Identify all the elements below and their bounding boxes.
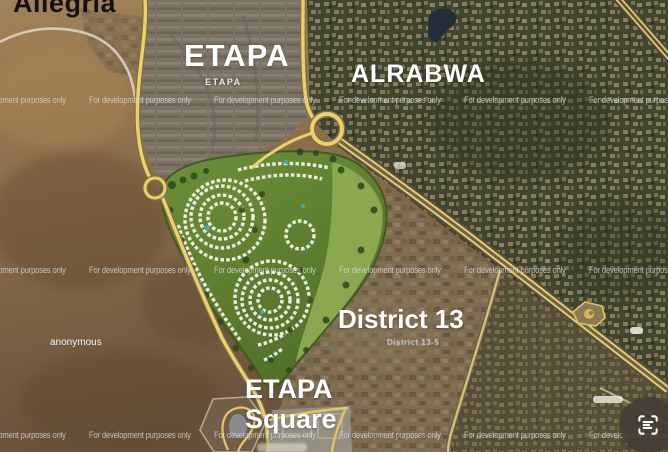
label-etapa-square-line1: ETAPA (245, 374, 337, 404)
map-canvas[interactable]: For development purposes onlyFor develop… (0, 0, 668, 452)
text-scan-icon (635, 412, 661, 438)
label-anonymous: anonymous (50, 337, 102, 348)
blurred-street-label (257, 443, 307, 452)
label-district-13-sub: District 13-5 (387, 338, 439, 347)
label-etapa: ETAPA (184, 38, 289, 74)
label-etapa-square-line2: Square (245, 404, 337, 434)
label-etapa-small: ETAPA (205, 77, 242, 87)
text-scan-button[interactable] (620, 397, 668, 452)
label-allegria: Allegria (13, 0, 116, 19)
label-district-13: District 13 (338, 304, 464, 335)
label-alrabwa: ALRABWA (351, 60, 486, 89)
label-etapa-square: ETAPA Square (245, 374, 337, 434)
